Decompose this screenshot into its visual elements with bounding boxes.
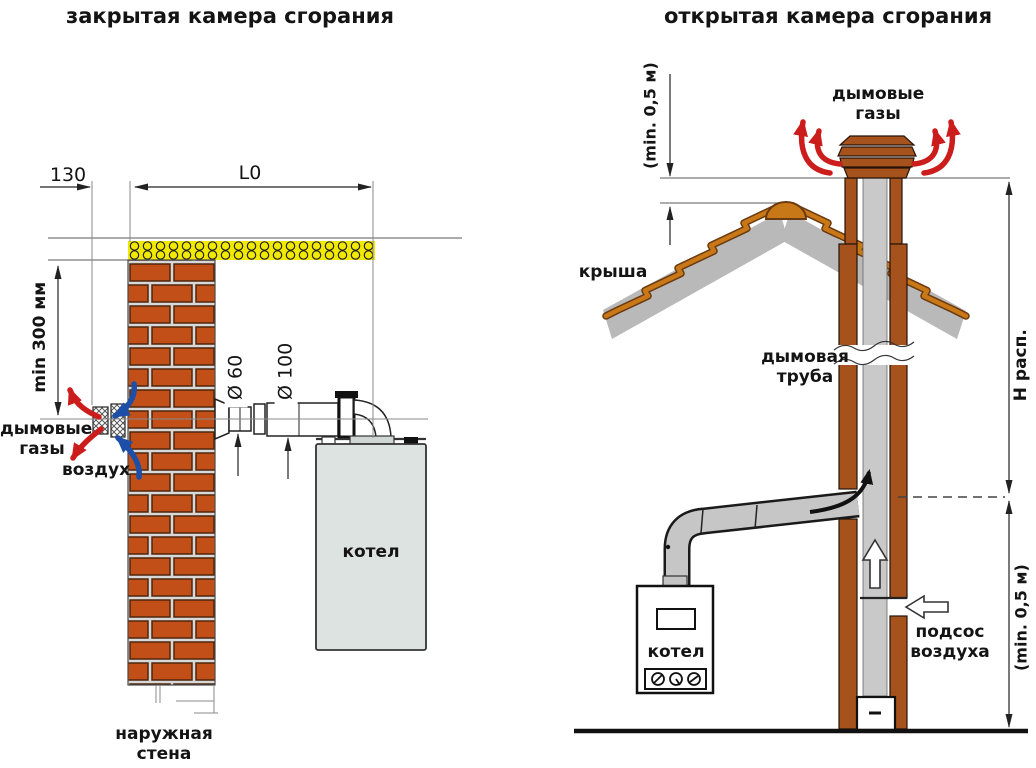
wall-base-lines: [156, 685, 218, 713]
boiler-label-right: котел: [640, 642, 712, 662]
dim-d100-label: Ø 100: [275, 336, 298, 406]
flue-connector-pipe: [666, 504, 858, 587]
insulation-band: [128, 241, 375, 260]
air-label: воздух: [58, 460, 134, 480]
air-suction-arrow: [906, 596, 948, 618]
air-suction-label: подсос воздуха: [906, 622, 994, 663]
ridge-cap: [766, 202, 806, 219]
chimney-cap: [838, 136, 916, 178]
outer-wall-label: наружная стена: [108, 724, 220, 765]
boiler-label-left: котел: [331, 542, 411, 562]
boiler-knobs: [652, 673, 700, 685]
dim-l0-label: L0: [226, 162, 274, 185]
dim-min300-label: min 300 мм: [30, 277, 50, 397]
boiler-right: [637, 576, 713, 693]
chimney-label: дымовая труба: [758, 347, 852, 388]
dim-min05-bottom-label: (min. 0,5 м): [1011, 558, 1030, 678]
dim-130-label: 130: [44, 164, 92, 187]
boiler-elbow: [335, 391, 391, 437]
right-title: открытая камера сгорания: [658, 4, 998, 29]
roof-label: крыша: [577, 262, 649, 282]
flue-gases-label-right: дымовые газы: [832, 84, 924, 125]
flue-gases-label-left: дымовые газы: [0, 419, 84, 460]
boiler-display: [657, 609, 695, 629]
dim-h-label: Н расп.: [1011, 320, 1031, 410]
dim-d60-label: Ø 60: [225, 347, 248, 407]
dim-min05-roof-label: (min. 0,5 м): [640, 56, 659, 176]
left-title: закрытая камера сгорания: [60, 4, 400, 29]
closed-chamber-diagram: [40, 181, 462, 713]
boiler-flue-diagram: закрытая камера сгорания открытая камера…: [0, 0, 1036, 768]
roof: [603, 202, 966, 339]
inner-flue-duct: [863, 178, 887, 696]
chimney: [834, 178, 914, 730]
